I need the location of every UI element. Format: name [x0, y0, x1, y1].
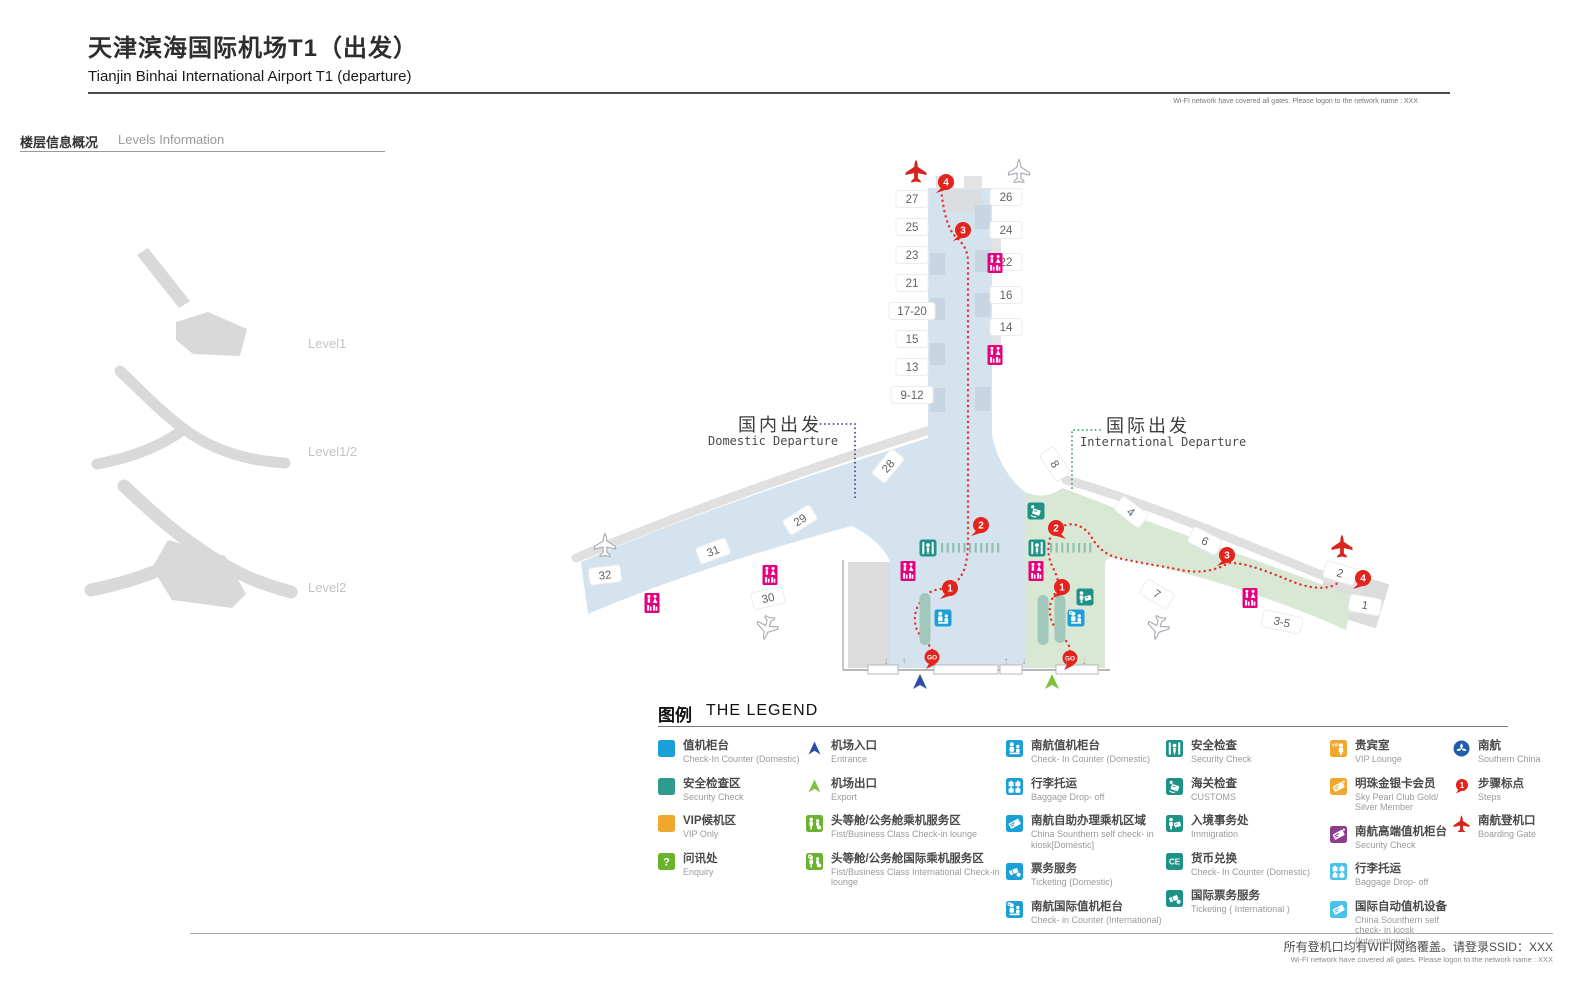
immigration-icon	[1077, 589, 1094, 606]
security-icon	[1166, 740, 1183, 757]
legend-label-zh: 南航自助办理乘机区域	[1031, 815, 1174, 828]
svg-text:1: 1	[1059, 583, 1065, 594]
legend-label-en: Check- In Counter (Domestic)	[1191, 867, 1310, 878]
enquiry-icon: ?	[658, 853, 675, 870]
level2-thumbnail-hall	[152, 540, 246, 608]
svg-text:23: 23	[906, 250, 919, 262]
gate-32: 32	[588, 565, 622, 586]
legend-item-checkin-intl: 南航国际值机柜台Check- in Counter (International…	[1006, 901, 1174, 926]
legend-item-kiosk-blue: 南航自助办理乘机区域China Sounthern self check- in…	[1006, 815, 1174, 850]
svg-text:21: 21	[906, 278, 919, 290]
level2-label: Level2	[308, 580, 346, 595]
legend-item-checkin-dom: 南航值机柜台Check- In Counter (Domestic)	[1006, 740, 1174, 765]
legend-label-zh: 头等舱/公务舱乘机服务区	[831, 815, 977, 828]
entrance-door	[1056, 665, 1098, 674]
legend-label-zh: 南航国际值机柜台	[1031, 901, 1162, 914]
door-flow-arrow-icon: ↓	[1022, 656, 1027, 667]
security-icon	[920, 540, 937, 557]
level1-2-thumbnail-branch	[97, 429, 184, 464]
legend-label-zh: 行李托运	[1355, 863, 1428, 876]
legend-label-en: Security Check	[683, 792, 744, 803]
svg-text:CE: CE	[1169, 857, 1181, 866]
legend-column-2: 机场入口Entrance机场出口Export头等舱/公务舱乘机服务区Fist/B…	[806, 740, 1006, 901]
legend-label-zh: 南航	[1478, 740, 1541, 753]
legend-label-zh: 海关检查	[1191, 778, 1237, 791]
ticket-teal-icon	[1166, 890, 1183, 907]
legend-label-zh: 国际票务服务	[1191, 890, 1290, 903]
levels-divider	[20, 151, 385, 152]
boarding-gate-plane-icon	[906, 159, 927, 182]
legend-label-en: Check- in Counter (International)	[1031, 915, 1162, 926]
steps-icon-icon: 1	[1453, 778, 1470, 795]
kiosk-blue-icon	[1006, 815, 1023, 832]
cz-logo-icon	[1453, 740, 1470, 757]
legend-item-arrow-green: 机场出口Export	[806, 778, 1006, 803]
customs-icon	[1166, 778, 1183, 795]
legend-label-en: Fist/Business Class International Check-…	[831, 867, 1006, 888]
svg-text:3: 3	[960, 226, 966, 237]
svg-text:27: 27	[906, 194, 919, 206]
checkin-intl-icon	[1068, 610, 1085, 627]
door-flow-arrow-icon: ↓	[884, 656, 889, 667]
legend-label-en: China Sounthern self check- in kiosk[Dom…	[1031, 829, 1174, 850]
boarding-icon	[1453, 815, 1470, 832]
wifi-note-top: Wi-FI network have covered all gates. Pl…	[1018, 98, 1418, 105]
legend-label-zh: VIP候机区	[683, 815, 736, 828]
levels-heading-en: Levels Information	[118, 132, 224, 147]
kiosk-cyan-icon	[1330, 901, 1347, 918]
entrance-arrow-international-icon	[1045, 674, 1059, 689]
legend-label-en: Baggage Drop- off	[1031, 792, 1104, 803]
plane-outline-icon	[1145, 614, 1171, 642]
legend-item-sq-teal: 安全检查区Security Check	[658, 778, 808, 803]
legend-item-arrow-blue: 机场入口Entrance	[806, 740, 1006, 765]
legend-label-zh: 机场出口	[831, 778, 877, 791]
legend-item-premium-checkin: 南航高端值机柜台Security Check	[1330, 826, 1462, 851]
legend-label-en: Entrance	[831, 754, 877, 765]
legend-label-en: Security Check	[1355, 840, 1447, 851]
baggage-blue-icon	[1006, 778, 1023, 795]
footer-divider	[190, 933, 1553, 934]
legend-label-zh: 货币兑换	[1191, 853, 1310, 866]
svg-text:32: 32	[598, 569, 612, 582]
gate-30: 30	[750, 586, 785, 610]
fb-lounge-intl-icon	[806, 853, 823, 870]
page-title: 天津滨海国际机场T1（出发）	[88, 28, 418, 63]
premium-checkin-icon	[1330, 826, 1347, 843]
legend-label-en: Sky Pearl Club Gold/ Silver Member	[1355, 792, 1462, 813]
legend-label-zh: 机场入口	[831, 740, 877, 753]
immigration-icon	[1166, 815, 1183, 832]
gate-25: 25	[896, 219, 928, 236]
legend-label-zh: 南航高端值机柜台	[1355, 826, 1447, 839]
legend-label-en: Ticketing ( International )	[1191, 904, 1290, 915]
sq-blue-icon	[658, 740, 675, 757]
legend-item-immigration: 入境事务处Immigration	[1166, 815, 1338, 840]
svg-text:13: 13	[906, 362, 919, 374]
gate-15: 15	[896, 331, 928, 348]
legend-label-en: CUSTOMS	[1191, 792, 1237, 803]
legend-item-security: 安全检查Security Check	[1166, 740, 1338, 765]
svg-text:25: 25	[906, 222, 919, 234]
checkin-island	[1055, 595, 1066, 643]
legend-label-en: Security Check	[1191, 754, 1252, 765]
plane-outline-icon	[1009, 159, 1030, 182]
legend-column-4: 安全检查Security Check海关检查CUSTOMS入境事务处Immigr…	[1166, 740, 1338, 928]
svg-text:3: 3	[1224, 551, 1230, 562]
level1-thumbnail-hall	[176, 312, 247, 356]
legend-label-en: Fist/Business Class Check-in lounge	[831, 829, 977, 840]
svg-text:17-20: 17-20	[897, 306, 926, 318]
gate-14: 14	[990, 319, 1022, 336]
door-flow-arrow-icon: ↓	[1082, 656, 1087, 667]
checkin-island	[920, 593, 931, 645]
gate-9-12: 9-12	[891, 387, 933, 404]
page-subtitle: Tianjin Binhai International Airport T1 …	[88, 68, 412, 85]
security-icon	[1029, 540, 1046, 557]
gate-16: 16	[990, 287, 1022, 304]
legend-label-en: Export	[831, 792, 877, 803]
legend-label-zh: 南航值机柜台	[1031, 740, 1150, 753]
gate-3-5: 3-5	[1261, 610, 1304, 635]
checkin-intl-icon	[1006, 901, 1023, 918]
toilet-icon	[901, 561, 916, 581]
jet-bridge-stub	[964, 176, 982, 189]
international-departure-label-en: International Departure	[1080, 435, 1246, 449]
entrance-door	[934, 665, 998, 674]
door-flow-arrow-icon: ↑	[1064, 656, 1069, 667]
legend-item-baggage-blue: 行李托运Baggage Drop- off	[1006, 778, 1174, 803]
domestic-departure-label-en: Domestic Departure	[708, 434, 838, 448]
gate-13: 13	[896, 359, 928, 376]
ce-icon: CE	[1166, 853, 1183, 870]
legend-title-zh: 图例	[658, 701, 692, 726]
svg-text:VIP: VIP	[1332, 742, 1339, 747]
level1-label: Level1	[308, 336, 346, 351]
legend-item-vip-lounge: VIP贵宾室VIP Lounge	[1330, 740, 1462, 765]
svg-text:26: 26	[1000, 192, 1013, 204]
legend-label-zh: 问讯处	[683, 853, 718, 866]
legend-label-zh: 安全检查区	[683, 778, 744, 791]
svg-text:16: 16	[1000, 290, 1013, 302]
legend-label-zh: 南航登机口	[1478, 815, 1536, 828]
gate-24: 24	[990, 222, 1022, 239]
legend-label-en: Steps	[1478, 792, 1524, 803]
legend-label-zh: 贵宾室	[1355, 740, 1402, 753]
checkin-island	[1038, 595, 1049, 645]
legend-item-steps-icon: 1步骤标点Steps	[1453, 778, 1565, 803]
levels-heading-zh: 楼层信息概况	[20, 132, 98, 151]
sq-orange-icon	[658, 815, 675, 832]
gate-7: 7	[1139, 578, 1175, 609]
legend-label-en: Check-In Counter (Domestic)	[683, 754, 800, 765]
legend-item-ce: CE货币兑换Check- In Counter (Domestic)	[1166, 853, 1338, 878]
ticket-blue-icon	[1006, 863, 1023, 880]
plane-outline-icon	[754, 614, 780, 642]
terminal-footprint	[576, 176, 1389, 674]
legend-item-sq-orange: VIP候机区VIP Only	[658, 815, 808, 840]
toilet-icon	[988, 345, 1003, 365]
legend-item-cz-logo: 南航Southern China	[1453, 740, 1565, 765]
legend-item-pearl-card: 明珠金银卡会员Sky Pearl Club Gold/ Silver Membe…	[1330, 778, 1462, 813]
legend-divider	[658, 726, 1508, 727]
level-thumbnails	[91, 248, 291, 608]
svg-text:15: 15	[906, 334, 919, 346]
gate-17-20: 17-20	[889, 303, 935, 320]
legend-item-enquiry: ?问讯处Enquiry	[658, 853, 808, 878]
svg-text:24: 24	[1000, 225, 1013, 237]
legend-label-zh: 票务服务	[1031, 863, 1113, 876]
customs-icon	[1028, 503, 1045, 520]
legend-title-en: THE LEGEND	[706, 702, 818, 720]
gate-27: 27	[896, 191, 928, 208]
legend-label-en: Baggage Drop- off	[1355, 877, 1428, 888]
legend-label-en: Boarding Gate	[1478, 829, 1536, 840]
legend-label-en: VIP Lounge	[1355, 754, 1402, 765]
legend-label-en: Immigration	[1191, 829, 1249, 840]
legend-label-zh: 步骤标点	[1478, 778, 1524, 791]
svg-text:1: 1	[947, 584, 953, 595]
arrow-blue-icon	[806, 740, 823, 757]
legend-label-en: Ticketing (Domestic)	[1031, 877, 1113, 888]
level1-thumbnail	[137, 248, 190, 308]
legend-item-boarding: 南航登机口Boarding Gate	[1453, 815, 1565, 840]
legend-label-en: VIP Only	[683, 829, 736, 840]
svg-text:?: ?	[663, 856, 670, 868]
gate-26: 26	[990, 189, 1022, 206]
legend-label-en: Southern China	[1478, 754, 1541, 765]
legend-label-zh: 明珠金银卡会员	[1355, 778, 1462, 791]
international-area	[1025, 488, 1352, 668]
checkin-dom-icon	[935, 610, 952, 627]
legend-item-fb-lounge: 头等舱/公务舱乘机服务区Fist/Business Class Check-in…	[806, 815, 1006, 840]
svg-text:4: 4	[1360, 574, 1366, 585]
legend-label-zh: 值机柜台	[683, 740, 800, 753]
legend-item-ticket-blue: 票务服务Ticketing (Domestic)	[1006, 863, 1174, 888]
legend-label-zh: 行李托运	[1031, 778, 1104, 791]
legend-label-en: Enquiry	[683, 867, 718, 878]
svg-text:2: 2	[978, 521, 984, 532]
checkin-dom-icon	[1006, 740, 1023, 757]
legend-column-6: 南航Southern China1步骤标点Steps南航登机口Boarding …	[1453, 740, 1565, 853]
legend-label-zh: 安全检查	[1191, 740, 1252, 753]
legend-column-1: 值机柜台Check-In Counter (Domestic)安全检查区Secu…	[658, 740, 808, 890]
pearl-card-icon	[1330, 778, 1347, 795]
fb-lounge-icon	[806, 815, 823, 832]
svg-text:14: 14	[1000, 322, 1013, 334]
legend-column-5: VIP贵宾室VIP Lounge明珠金银卡会员Sky Pearl Club Go…	[1330, 740, 1462, 959]
vip-lounge-icon: VIP	[1330, 740, 1347, 757]
svg-text:2: 2	[1053, 524, 1059, 535]
svg-text:1: 1	[1460, 780, 1465, 789]
door-flow-arrow-icon: ↑	[902, 656, 907, 667]
legend-item-ticket-teal: 国际票务服务Ticketing ( International )	[1166, 890, 1338, 915]
baggage-cyan-icon	[1330, 863, 1347, 880]
entrance-arrow-domestic-icon	[913, 674, 927, 689]
door-flow-arrow-icon: ↑	[1004, 656, 1009, 667]
service-block	[848, 562, 890, 668]
legend-label-zh: 头等舱/公务舱国际乘机服务区	[831, 853, 1006, 866]
legend-item-customs: 海关检查CUSTOMS	[1166, 778, 1338, 803]
svg-text:GO: GO	[927, 655, 937, 662]
gate-23: 23	[896, 247, 928, 264]
boarding-gate-plane-icon	[1332, 534, 1353, 557]
legend-label-zh: 入境事务处	[1191, 815, 1249, 828]
sq-teal-icon	[658, 778, 675, 795]
toilet-icon	[988, 253, 1003, 273]
toilet-icon	[1029, 561, 1044, 581]
gate-21: 21	[896, 275, 928, 292]
toilet-icon	[1243, 588, 1258, 608]
legend-item-fb-lounge-intl: 头等舱/公务舱国际乘机服务区Fist/Business Class Intern…	[806, 853, 1006, 888]
level1-2-label: Level1/2	[308, 444, 357, 459]
legend-item-sq-blue: 值机柜台Check-In Counter (Domestic)	[658, 740, 808, 765]
toilet-icon	[645, 593, 660, 613]
legend-column-3: 南航值机柜台Check- In Counter (Domestic)行李托运Ba…	[1006, 740, 1174, 938]
wifi-note-footer-en: Wi-FI network have covered all gates. Pl…	[1153, 955, 1553, 964]
svg-text:4: 4	[943, 178, 949, 189]
wifi-note-footer-zh: 所有登机口均有WIFI网络覆盖。请登录SSID：XXX	[1153, 938, 1553, 955]
toilet-icon	[763, 565, 778, 585]
svg-text:9-12: 9-12	[900, 390, 923, 402]
header-divider	[88, 92, 1450, 94]
legend-label-zh: 国际自动值机设备	[1355, 901, 1462, 914]
legend-item-baggage-cyan: 行李托运Baggage Drop- off	[1330, 863, 1462, 888]
legend-label-en: Check- In Counter (Domestic)	[1031, 754, 1150, 765]
arrow-green-icon	[806, 778, 823, 795]
